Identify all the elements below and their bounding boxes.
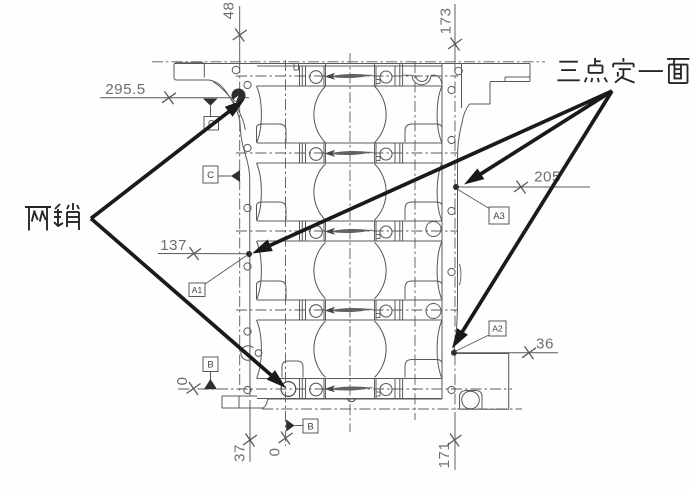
svg-text:36: 36: [536, 336, 554, 353]
svg-text:171: 171: [436, 442, 453, 469]
svg-text:A1: A1: [192, 285, 203, 295]
svg-text:48: 48: [221, 2, 238, 20]
svg-text:B: B: [207, 360, 213, 371]
svg-text:295.5: 295.5: [105, 81, 146, 98]
svg-text:173: 173: [438, 8, 455, 35]
svg-text:C: C: [207, 170, 214, 181]
svg-text:A3: A3: [493, 211, 505, 222]
svg-text:137: 137: [160, 237, 187, 254]
svg-text:0: 0: [267, 448, 284, 457]
svg-text:37: 37: [232, 444, 249, 462]
svg-text:0: 0: [174, 377, 191, 386]
svg-text:A2: A2: [492, 324, 503, 334]
svg-text:B: B: [307, 421, 313, 432]
